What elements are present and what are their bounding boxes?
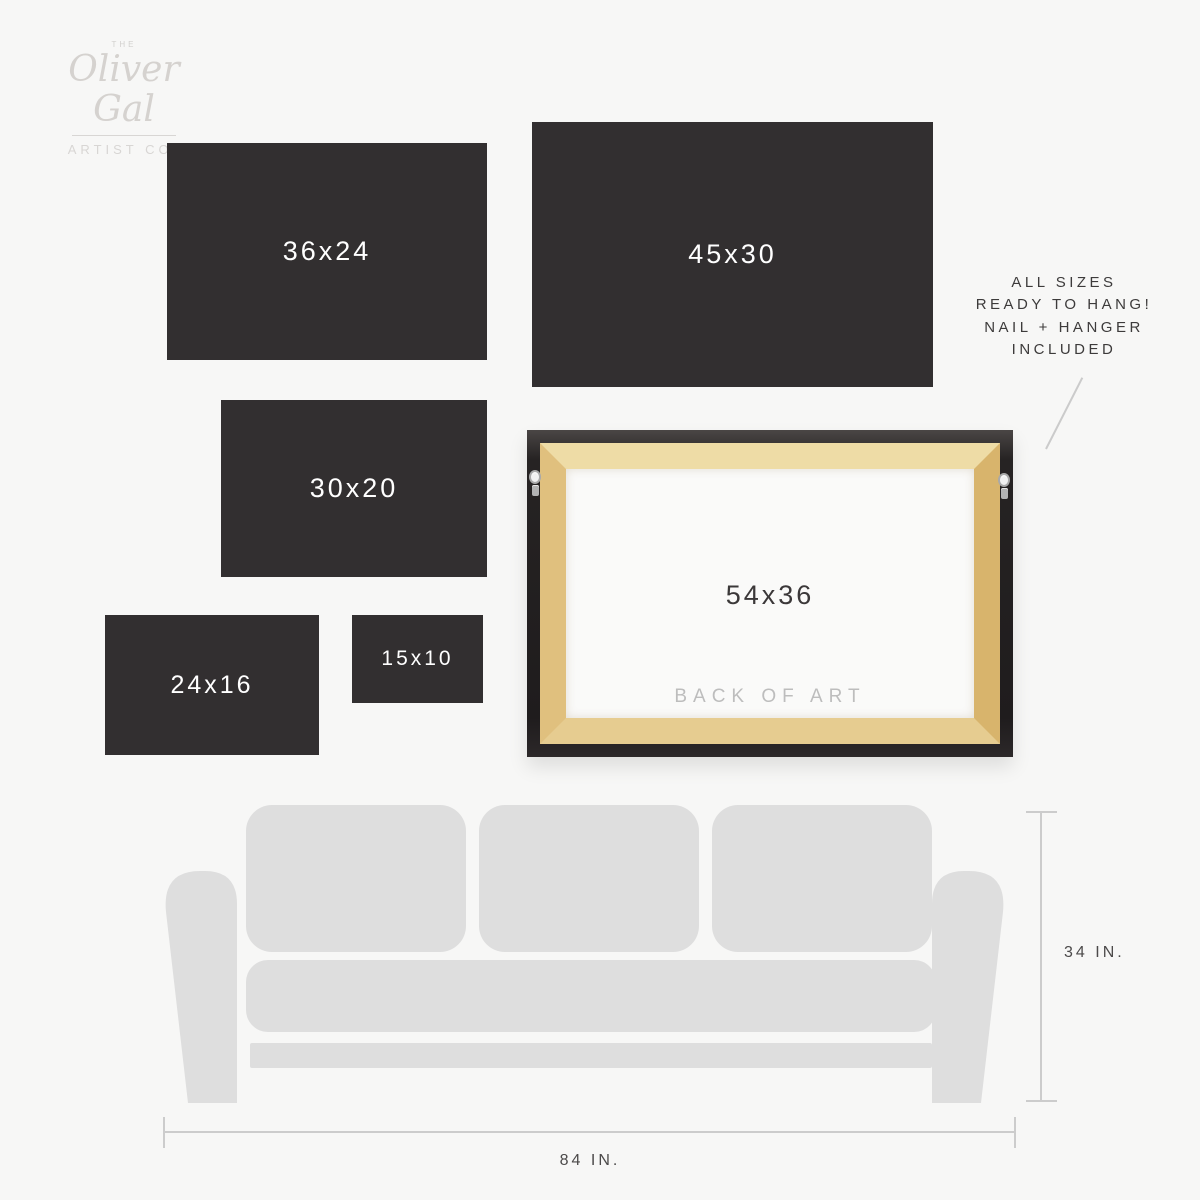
height-dimension-cap-top [1026,811,1057,813]
brand-logo-the: THE [44,40,204,49]
sofa-silhouette [160,800,1010,1110]
size-panel-label: 30x20 [310,473,399,504]
size-panel-label: 24x16 [170,671,253,700]
note-line: ALL SIZES [954,272,1174,294]
note-line: INCLUDED [954,339,1174,361]
back-of-art-caption: BACK OF ART [566,686,974,708]
size-panel-36x24: 36x24 [167,143,487,360]
back-of-art-frame: 54x36 BACK OF ART [527,430,1013,757]
size-panel-label: 36x24 [283,236,372,267]
canvas-back: 54x36 BACK OF ART [566,469,974,718]
note-line: READY TO HANG! [954,294,1174,316]
width-dimension-cap-left [163,1117,165,1148]
width-dimension-line [164,1131,1015,1133]
brand-logo-divider [72,135,176,136]
size-panel-label: 15x10 [381,647,453,671]
size-panel-15x10: 15x10 [352,615,483,703]
d-ring-icon [529,470,541,484]
d-ring-hanger-left [528,470,543,497]
brand-logo-wordmark: Oliver Gal [44,50,204,130]
size-guide-infographic: THE Oliver Gal ARTIST CO. 36x24 45x30 30… [0,0,1200,1200]
d-ring-clasp [1001,488,1008,499]
frame-size-label: 54x36 [566,580,974,611]
stretcher-bars: 54x36 BACK OF ART [540,443,1000,744]
height-dimension-line [1040,812,1042,1101]
d-ring-icon [998,473,1010,487]
d-ring-clasp [532,485,539,496]
size-panel-45x30: 45x30 [532,122,933,387]
height-dimension-cap-bottom [1026,1100,1057,1102]
size-panel-24x16: 24x16 [105,615,319,755]
brand-logo: THE Oliver Gal ARTIST CO. [44,40,204,157]
width-dimension-cap-right [1014,1117,1016,1148]
note-line: NAIL + HANGER [954,317,1174,339]
size-panel-label: 45x30 [688,239,777,270]
ready-to-hang-note: ALL SIZES READY TO HANG! NAIL + HANGER I… [954,272,1174,362]
note-pointer-line [1045,377,1083,449]
size-panel-30x20: 30x20 [221,400,487,577]
d-ring-hanger-right [997,473,1012,500]
sofa-width-label: 84 IN. [540,1152,640,1170]
sofa-height-label: 34 IN. [1064,944,1125,962]
